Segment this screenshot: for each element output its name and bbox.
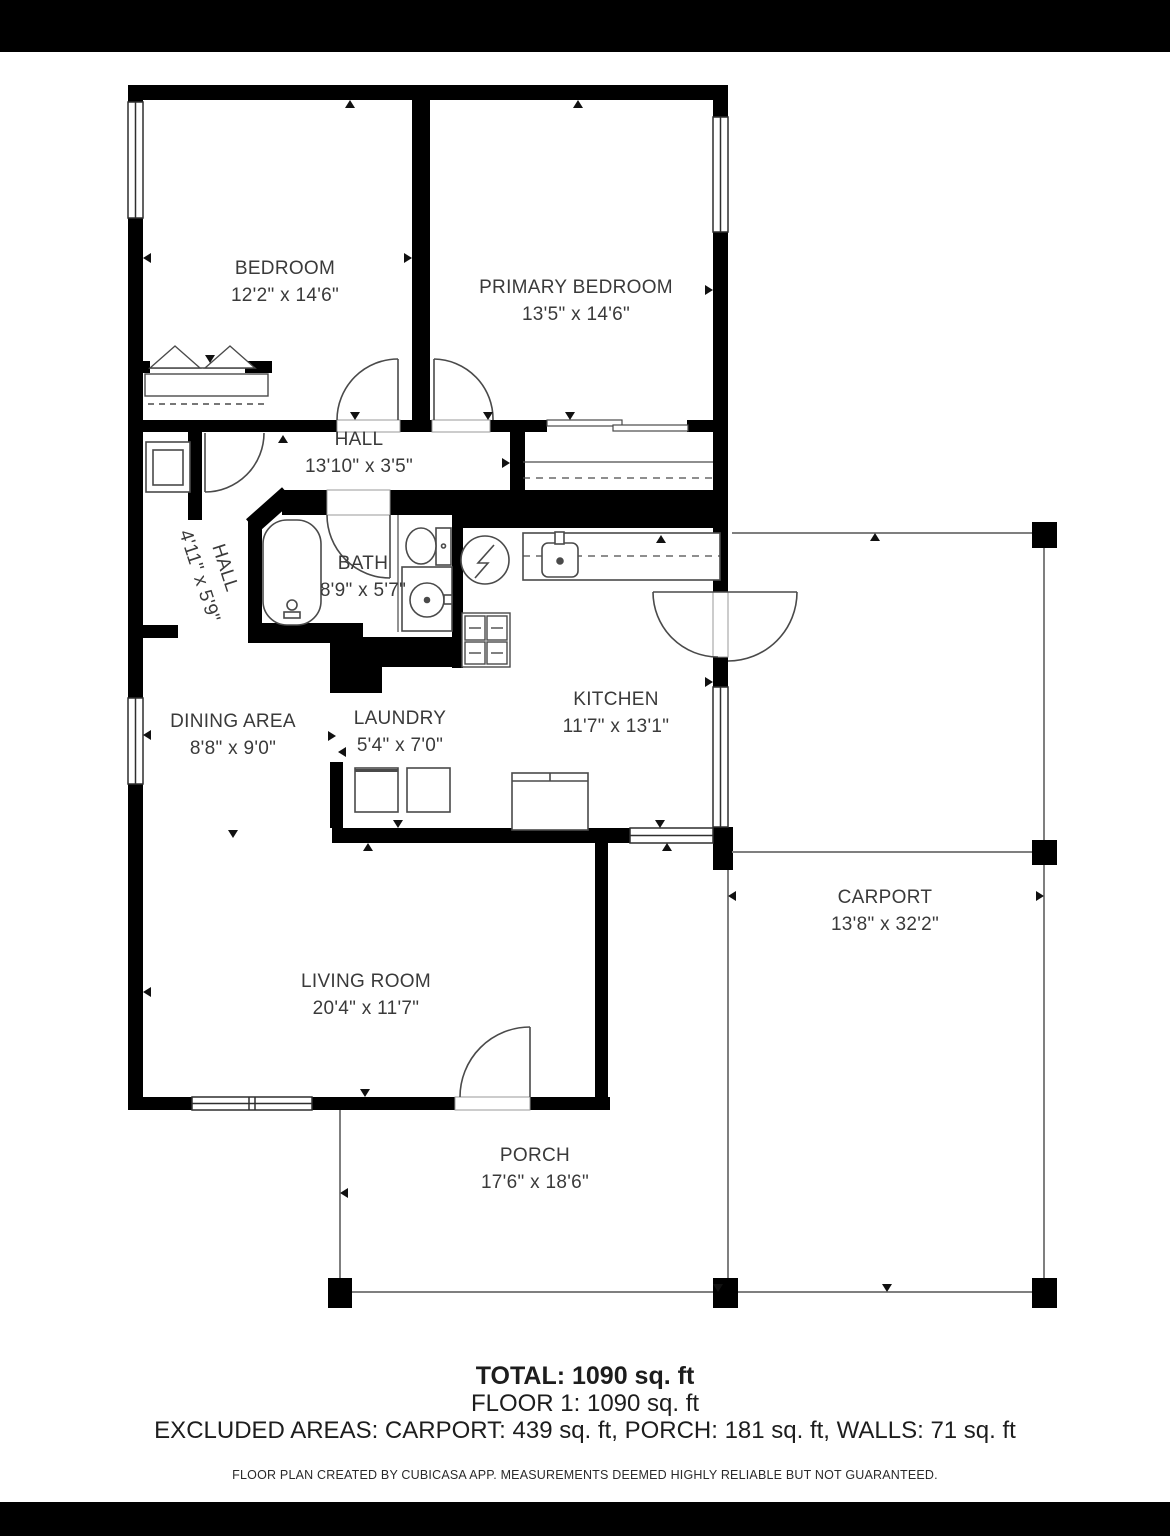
bottom-letterbox-bar	[0, 1502, 1170, 1536]
excluded-areas-text: EXCLUDED AREAS: CARPORT: 439 sq. ft, POR…	[0, 1417, 1170, 1444]
floor-area-text: FLOOR 1: 1090 sq. ft	[0, 1390, 1170, 1417]
primary-closet-shelf-icon	[523, 462, 713, 478]
room-label-bath: BATH 8'9" x 5'7"	[320, 550, 406, 604]
room-dims: 13'5" x 14'6"	[479, 301, 673, 328]
room-name: BATH	[320, 550, 406, 577]
room-name: CARPORT	[831, 884, 939, 911]
room-dims: 8'8" x 9'0"	[170, 735, 296, 762]
bedroom-wardrobe-icon	[145, 346, 268, 404]
kitchen-side-window-icon	[713, 687, 728, 827]
entry-cabinet-icon	[146, 442, 190, 492]
room-label-living-room: LIVING ROOM 20'4" x 11'7"	[301, 968, 431, 1022]
room-name: PORCH	[481, 1142, 589, 1169]
room-dims: 13'10" x 3'5"	[305, 453, 413, 480]
bedroom-window-icon	[128, 102, 143, 218]
room-name: BEDROOM	[231, 255, 339, 282]
total-area-text: TOTAL: 1090 sq. ft	[0, 1363, 1170, 1390]
room-dims: 5'4" x 7'0"	[354, 732, 447, 759]
room-label-bedroom: BEDROOM 12'2" x 14'6"	[231, 255, 339, 309]
room-dims: 11'7" x 13'1"	[563, 713, 670, 740]
bedroom-door-icon	[337, 359, 398, 420]
room-dims: 17'6" x 18'6"	[481, 1169, 589, 1196]
room-label-primary-bedroom: PRIMARY BEDROOM 13'5" x 14'6"	[479, 274, 673, 328]
room-dims: 20'4" x 11'7"	[301, 995, 431, 1022]
primary-bedroom-window-icon	[713, 117, 728, 232]
room-name: LIVING ROOM	[301, 968, 431, 995]
room-name: HALL	[305, 426, 413, 453]
dining-window-icon	[128, 698, 143, 784]
area-summary: TOTAL: 1090 sq. ft FLOOR 1: 1090 sq. ft …	[0, 1363, 1170, 1482]
fridge-icon	[512, 773, 588, 830]
bathtub-icon	[263, 520, 321, 625]
room-name: PRIMARY BEDROOM	[479, 274, 673, 301]
dryer-icon	[407, 768, 450, 812]
room-label-laundry: LAUNDRY 5'4" x 7'0"	[354, 705, 447, 759]
floor-plan-page: BEDROOM 12'2" x 14'6" PRIMARY BEDROOM 13…	[0, 0, 1170, 1536]
water-heater-icon	[461, 536, 509, 584]
room-dims: 8'9" x 5'7"	[320, 577, 406, 604]
primary-closet-sliding-door-icon	[547, 420, 688, 431]
room-label-carport: CARPORT 13'8" x 32'2"	[831, 884, 939, 938]
room-dims: 13'8" x 32'2"	[831, 911, 939, 938]
disclaimer-text: FLOOR PLAN CREATED BY CUBICASA APP. MEAS…	[0, 1468, 1170, 1482]
room-name: DINING AREA	[170, 708, 296, 735]
floor-plan-canvas	[0, 0, 1170, 1536]
washer-icon	[355, 768, 398, 812]
toilet-icon	[406, 528, 451, 565]
room-label-hall: HALL 13'10" x 3'5"	[305, 426, 413, 480]
entry-closet-door-icon	[205, 433, 264, 492]
room-label-porch: PORCH 17'6" x 18'6"	[481, 1142, 589, 1196]
room-name: LAUNDRY	[354, 705, 447, 732]
room-dims: 12'2" x 14'6"	[231, 282, 339, 309]
room-label-kitchen: KITCHEN 11'7" x 13'1"	[563, 686, 670, 740]
room-name: KITCHEN	[563, 686, 670, 713]
bathroom-sink-icon	[402, 567, 452, 631]
living-room-window-icon	[192, 1097, 312, 1110]
front-door-icon	[460, 1027, 530, 1097]
primary-bedroom-door-icon	[434, 359, 493, 420]
kitchen-rear-window-icon	[630, 828, 713, 843]
stove-icon	[462, 613, 510, 667]
room-label-dining-area: DINING AREA 8'8" x 9'0"	[170, 708, 296, 762]
